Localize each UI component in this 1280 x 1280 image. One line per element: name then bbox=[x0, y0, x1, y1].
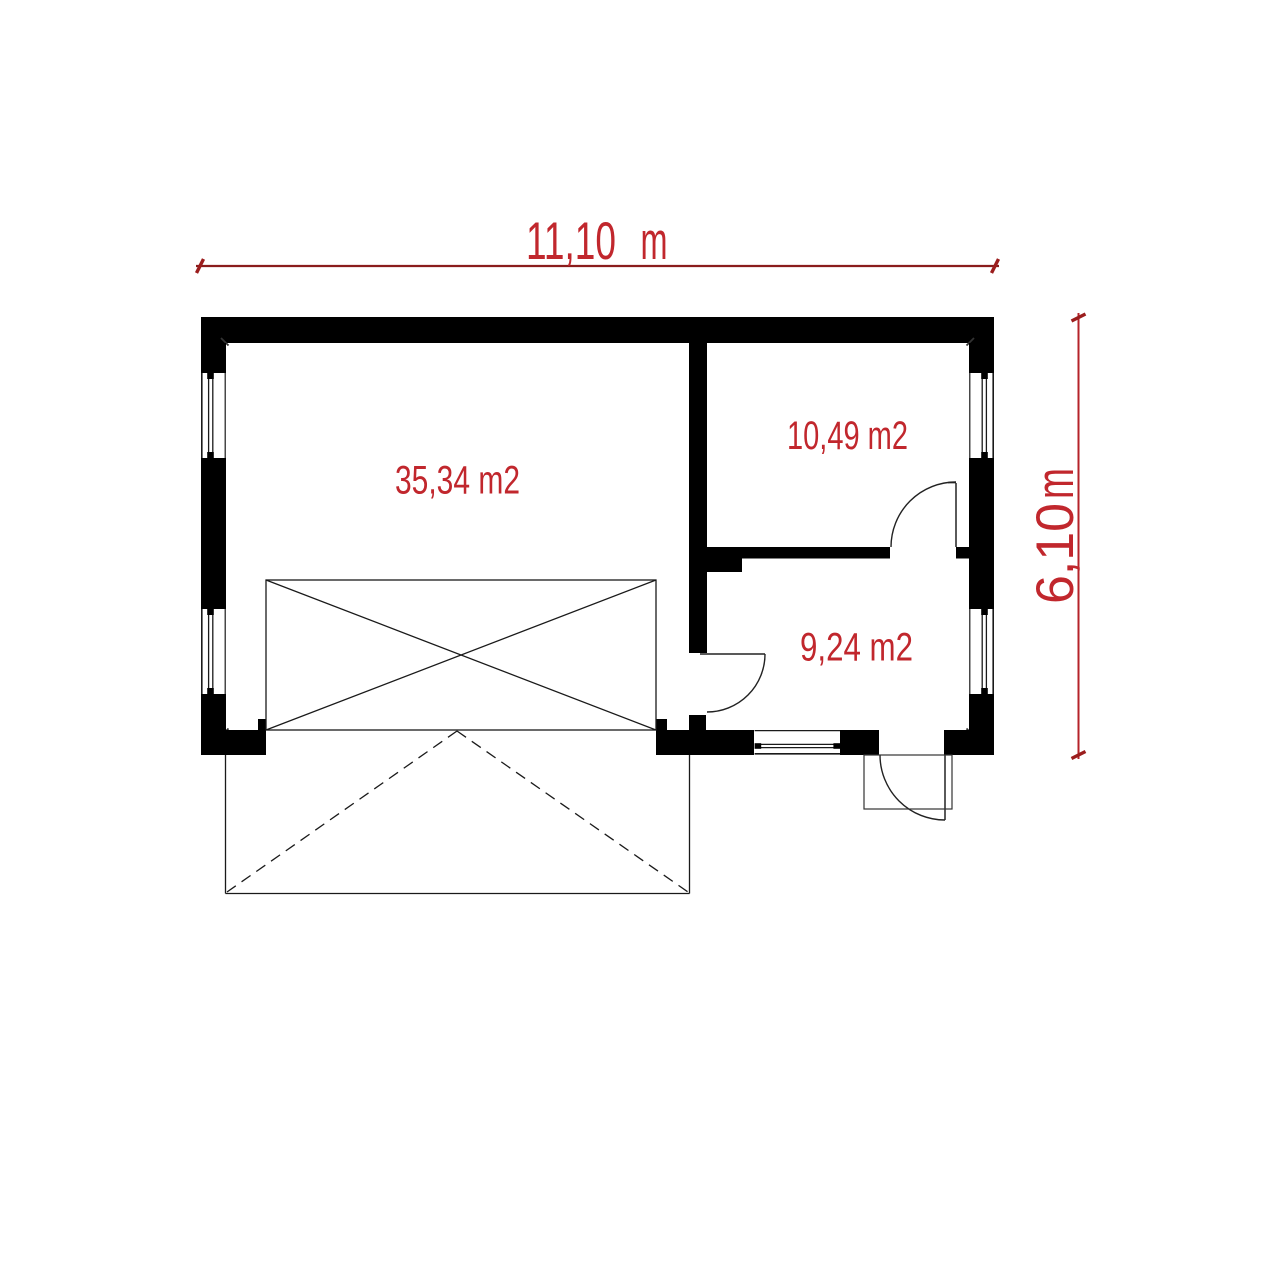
svg-text:m: m bbox=[1026, 468, 1085, 499]
svg-text:11,10: 11,10 bbox=[526, 212, 616, 271]
svg-text:10,49 m2: 10,49 m2 bbox=[787, 414, 908, 458]
svg-text:m: m bbox=[641, 212, 668, 271]
svg-text:9,24 m2: 9,24 m2 bbox=[800, 626, 913, 670]
svg-text:35,34 m2: 35,34 m2 bbox=[395, 459, 520, 503]
svg-text:6,10: 6,10 bbox=[1026, 503, 1085, 604]
